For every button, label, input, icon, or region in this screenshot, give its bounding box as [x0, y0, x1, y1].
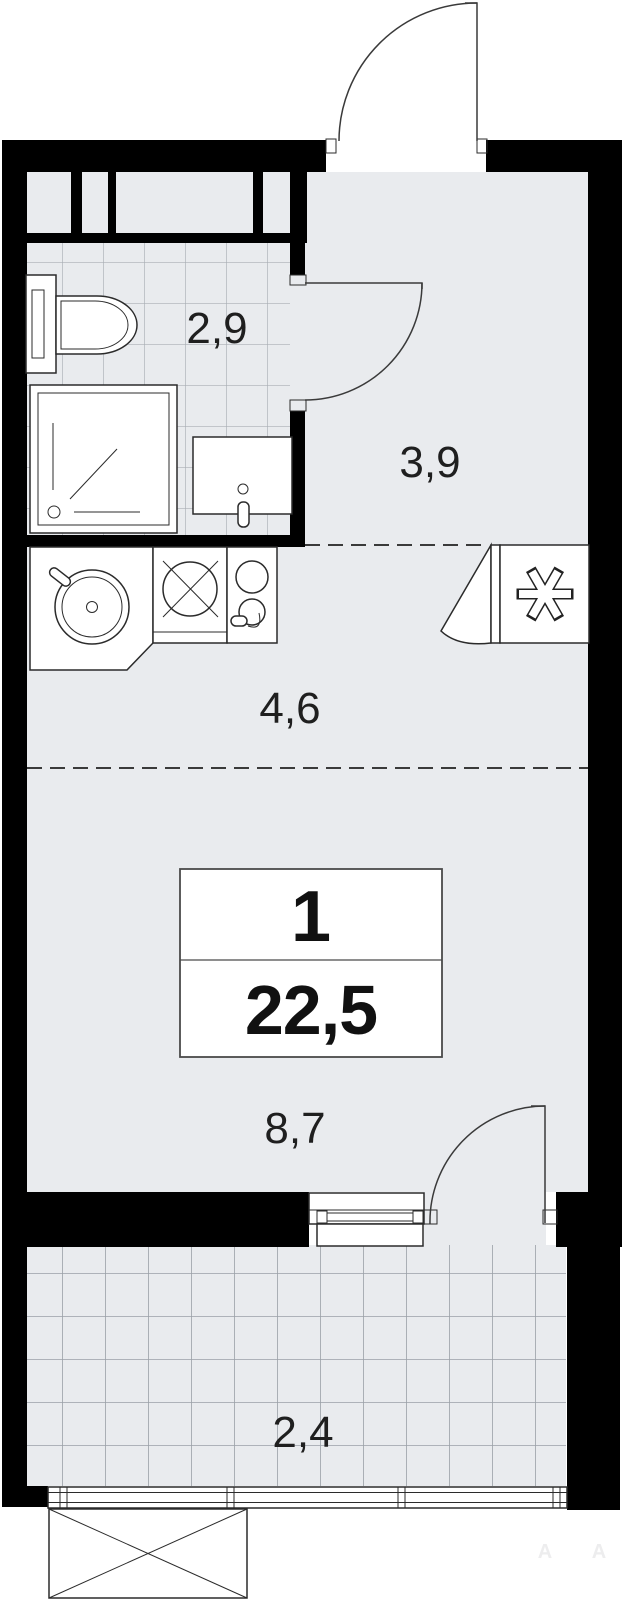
wall-top-left	[2, 140, 326, 172]
entry-door-leaf	[465, 3, 477, 141]
balcony-window-outer-sill	[317, 1224, 423, 1246]
bathroom-area-label: 2,9	[186, 304, 247, 353]
wall-left	[2, 140, 27, 1507]
wall-niche-post-3	[253, 172, 263, 233]
watermark-letter-2: A	[592, 1541, 606, 1563]
washbasin-faucet-pill	[238, 502, 249, 527]
info-box-room-count: 1	[291, 877, 331, 957]
wall-bathroom-south	[27, 535, 305, 547]
hallway-area-label: 3,9	[399, 438, 460, 487]
floor-plan-canvas: 2,9 3,9 4,6 8,7 2,4 1 22,5 A A	[0, 0, 622, 1600]
wall-bathroom-east-upper	[290, 243, 305, 275]
balcony-area-label: 2,4	[272, 1408, 333, 1457]
wall-right	[588, 140, 622, 1192]
balcony-door-opening-floor	[424, 1192, 546, 1246]
wall-bathroom-north-band	[27, 233, 307, 243]
shower-icon	[30, 385, 177, 533]
balcony-window-frame	[309, 1193, 424, 1224]
toilet-bowl-outer	[56, 296, 137, 354]
watermark-letter-1: A	[538, 1541, 552, 1563]
wall-balcony-right	[567, 1192, 620, 1510]
washbasin-icon	[193, 437, 292, 527]
shower-tray-outer	[30, 385, 177, 533]
watermark: A A	[538, 1541, 606, 1563]
kitchen-area-label: 4,6	[259, 684, 320, 733]
wall-niche-post-1	[71, 172, 82, 233]
entry-door	[326, 3, 487, 153]
wall-niche-post-2	[108, 172, 116, 233]
crossed-box-icon	[49, 1509, 247, 1598]
entry-door-swing-arc-icon	[339, 3, 477, 141]
entry-threshold	[326, 140, 486, 172]
fridge-door-leaf	[491, 545, 500, 643]
wall-balcony-left-foot	[2, 1486, 48, 1507]
floor-plan: 2,9 3,9 4,6 8,7 2,4 1 22,5 A A	[0, 0, 622, 1600]
balcony-glazing-band	[48, 1487, 567, 1508]
living-area-label: 8,7	[264, 1104, 325, 1153]
balcony-window-icon	[309, 1193, 424, 1246]
washing-machine-icon	[30, 547, 153, 670]
wall-bathroom-north-column	[290, 172, 307, 243]
info-box: 1 22,5	[180, 869, 442, 1057]
info-box-total-area: 22,5	[245, 971, 377, 1049]
balcony-glazing	[48, 1487, 567, 1508]
stove-knob	[231, 616, 247, 626]
wall-living-bottom-left	[27, 1192, 309, 1247]
